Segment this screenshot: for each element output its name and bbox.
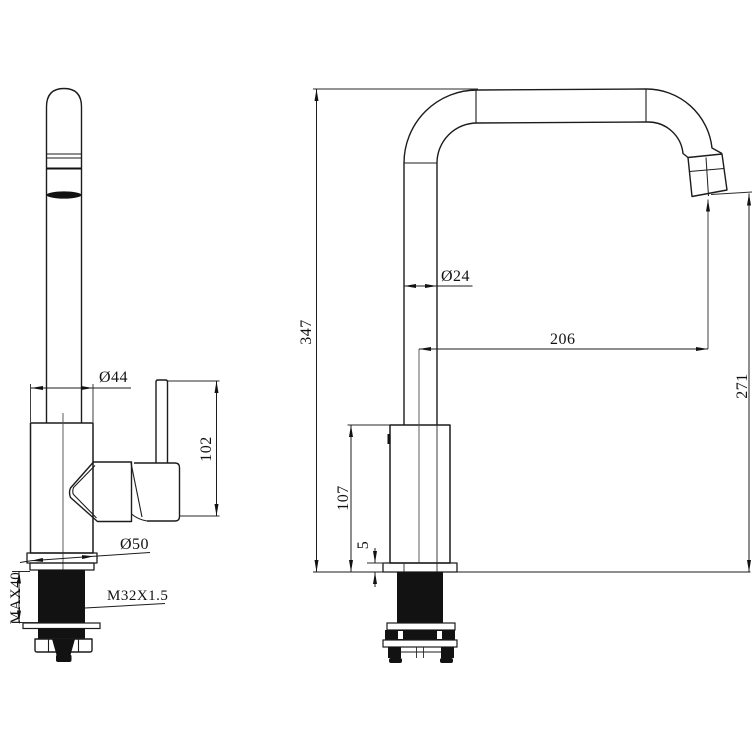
- front-thread: [38, 570, 85, 623]
- dim-body-height: 107: [335, 485, 352, 511]
- dim-group-base-plate-thickness: 5: [355, 541, 385, 587]
- dim-group-handle-height: 102: [168, 381, 220, 516]
- dim-group-overall-height: 347: [298, 89, 478, 572]
- dim-pipe-diameter: Ø24: [441, 268, 470, 285]
- front-view: Ø44 102 Ø50 MAX40 M32X1.5: [8, 89, 220, 663]
- handle-hub-mark: [388, 434, 391, 444]
- dim-thread-length: MAX40: [8, 572, 24, 625]
- aerator-tip: [688, 154, 727, 197]
- front-thread-assembly: [23, 570, 100, 662]
- front-base-plate: [27, 553, 97, 570]
- side-thread: [397, 572, 443, 623]
- dim-base-plate-thickness: 5: [355, 541, 372, 550]
- dim-outlet-height: 271: [734, 373, 751, 399]
- dim-spout-reach: 206: [550, 331, 576, 348]
- dim-group-body-diameter: Ø44: [31, 369, 132, 422]
- dim-group-thread-length: MAX40: [8, 572, 38, 625]
- dim-base-diameter: Ø50: [120, 536, 149, 553]
- dim-overall-height: 347: [298, 319, 315, 345]
- dim-thread-spec: M32X1.5: [107, 588, 168, 604]
- side-spout: [404, 89, 727, 425]
- drawing-svg: Ø44 102 Ø50 MAX40 M32X1.5: [0, 0, 752, 752]
- dim-group-base-diameter: Ø50: [20, 536, 150, 563]
- side-view: 347 Ø24 206 271 107: [298, 89, 752, 663]
- dim-group-outlet-height: 271: [711, 192, 752, 572]
- dim-group-pipe-diameter: Ø24: [404, 268, 473, 286]
- handle-lever: [156, 380, 168, 463]
- side-base-plate: [383, 563, 457, 572]
- front-body: [31, 413, 94, 572]
- front-handle: [70, 380, 180, 522]
- side-body: [388, 349, 451, 563]
- side-thread-assembly: [383, 572, 457, 663]
- dim-handle-height: 102: [198, 436, 215, 462]
- dim-group-thread-spec: M32X1.5: [85, 588, 168, 608]
- faucet-technical-drawing: Ø44 102 Ø50 MAX40 M32X1.5: [0, 0, 752, 752]
- aerator-band: [47, 191, 82, 198]
- front-spout-pipe: [47, 89, 82, 424]
- dim-body-diameter: Ø44: [99, 369, 128, 386]
